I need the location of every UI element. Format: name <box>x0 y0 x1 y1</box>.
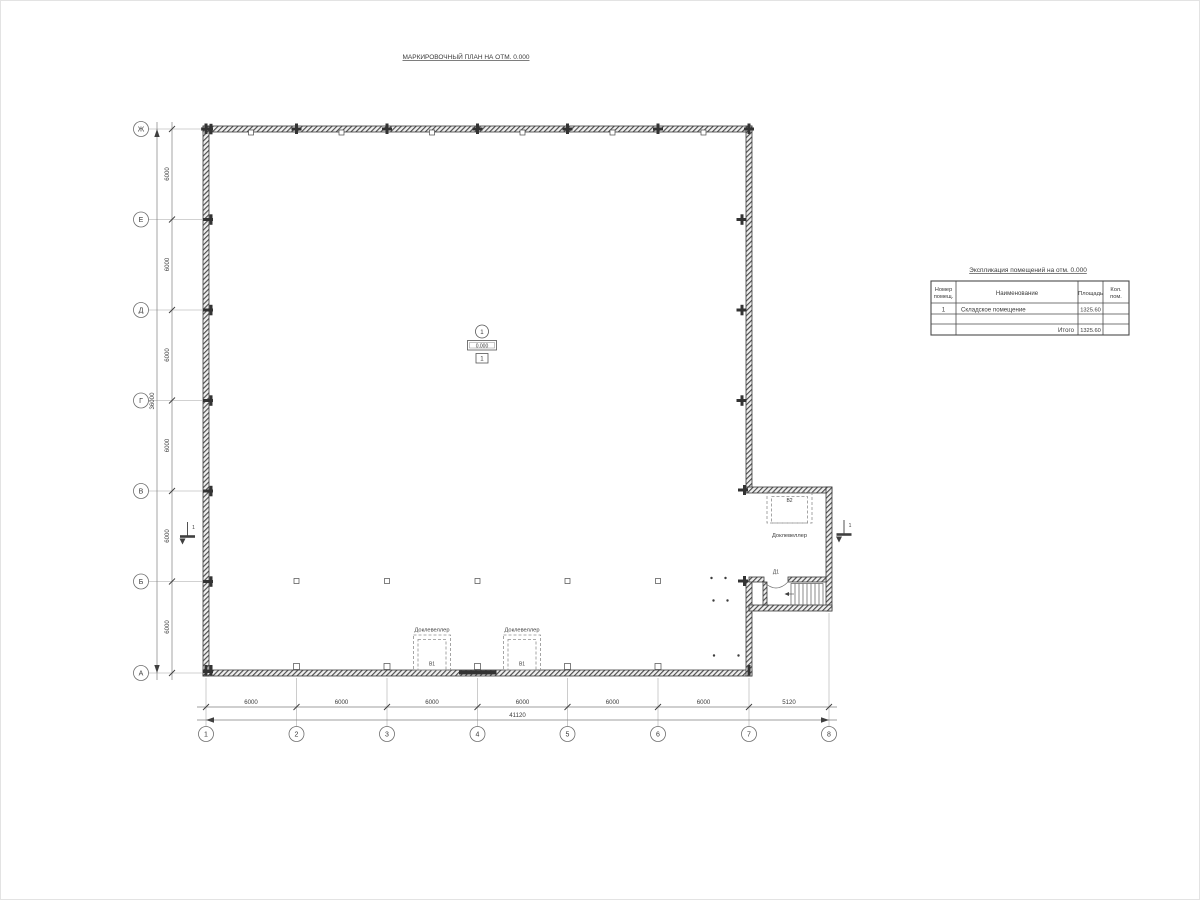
dock-leveller-2-label: Доклевеллер <box>504 628 539 634</box>
dock-leveller-3: В2 Доклевеллер <box>767 492 812 539</box>
axis-row-zh: Ж <box>138 127 145 134</box>
dim-bay-4: 6000 <box>516 699 530 706</box>
dim-row-4: 6000 <box>164 438 171 452</box>
section-mark-right: 1 <box>836 520 852 543</box>
header-count-2: пом. <box>1110 294 1122 300</box>
stairwell <box>785 584 824 606</box>
schedule-row-total: Итого 1325.60 <box>1058 327 1101 334</box>
column-marks <box>201 124 754 676</box>
dock-leveller-2: Доклевеллер В1 <box>504 628 541 671</box>
total-area: 1325.60 <box>1080 328 1101 334</box>
dim-bay-7: 5120 <box>782 699 796 706</box>
dock-leveller-2-tag: В1 <box>519 662 525 668</box>
axis-col-8: 8 <box>827 732 831 739</box>
axis-col-5: 5 <box>566 732 570 739</box>
axis-col-6: 6 <box>656 732 660 739</box>
wall-opening-marks <box>249 130 707 670</box>
elevation-value: 0.000 <box>476 344 489 350</box>
dim-total-height: 36000 <box>149 392 156 410</box>
dim-bay-6: 6000 <box>697 699 711 706</box>
total-label: Итого <box>1058 327 1075 334</box>
room-marker: 1 0.000 1 <box>468 325 497 363</box>
dock-leveller-1-tag: В1 <box>429 662 435 668</box>
axis-row-v: В <box>139 489 144 496</box>
dim-bay-1: 6000 <box>244 699 258 706</box>
dim-total-width: 41120 <box>509 712 526 719</box>
dock-leveller-3-label: Доклевеллер <box>772 533 807 539</box>
door-tag: Д1 <box>773 570 779 576</box>
dock-leveller-3-tag: В2 <box>786 498 792 504</box>
dock-leveller-1-label: Доклевеллер <box>414 628 449 634</box>
section-label-left: 1 <box>192 525 195 531</box>
row1-num: 1 <box>942 307 946 314</box>
left-dimensions: 6000 6000 6000 6000 6000 6000 36000 <box>149 122 175 680</box>
bottom-dimensions: 6000 6000 6000 6000 6000 6000 5120 41120 <box>197 699 837 723</box>
dim-bay-2: 6000 <box>335 699 349 706</box>
header-count-1: Кол. <box>1110 287 1122 293</box>
axis-col-2: 2 <box>295 732 299 739</box>
axis-col-7: 7 <box>747 732 751 739</box>
row1-name: Складское помещение <box>961 307 1026 314</box>
dim-bay-3: 6000 <box>425 699 439 706</box>
plan-title: МАРКИРОВОЧНЫЙ ПЛАН НА ОТМ. 0.000 <box>402 52 529 61</box>
header-num-1: Номер <box>935 287 953 293</box>
door: Д1 <box>764 570 788 589</box>
bottom-axis-circles: 1 2 3 4 5 6 7 8 <box>199 727 837 742</box>
header-name: Наименование <box>996 290 1039 297</box>
room-schedule: Экспликация помещений на отм. 0.000 Номе… <box>931 266 1129 335</box>
dim-row-3: 6000 <box>164 348 171 362</box>
axis-row-d: Д <box>139 308 144 315</box>
dim-row-1: 6000 <box>164 167 171 181</box>
dim-row-2: 6000 <box>164 257 171 271</box>
left-axis-circles: Ж Е Д Г В Б А <box>134 122 149 681</box>
axis-row-g: Г <box>139 398 143 405</box>
axis-row-a: А <box>139 671 144 678</box>
dim-bay-5: 6000 <box>606 699 620 706</box>
dock-leveller-1: Доклевеллер В1 <box>414 628 451 671</box>
drawing-sheet: МАРКИРОВОЧНЫЙ ПЛАН НА ОТМ. 0.000 <box>0 0 1200 900</box>
building-walls <box>203 126 752 676</box>
dim-row-5: 6000 <box>164 529 171 543</box>
extension-lines <box>149 129 830 727</box>
header-area: Площадь <box>1078 291 1103 297</box>
axis-col-1: 1 <box>204 732 208 739</box>
section-mark-left: 1 <box>180 522 196 545</box>
axis-col-3: 3 <box>385 732 389 739</box>
dim-row-6: 6000 <box>164 620 171 634</box>
floor-plan-drawing: МАРКИРОВОЧНЫЙ ПЛАН НА ОТМ. 0.000 <box>1 1 1200 900</box>
header-num-2: помещ. <box>934 294 954 300</box>
schedule-row-1: 1 Складское помещение 1325.60 <box>942 307 1101 314</box>
section-label-right: 1 <box>849 523 852 529</box>
schedule-header-row: Номер помещ. Наименование Площадь Кол. п… <box>934 287 1123 300</box>
axis-row-b: Б <box>139 579 144 586</box>
axis-row-e: Е <box>139 217 144 224</box>
interior-columns <box>294 577 740 657</box>
schedule-title: Экспликация помещений на отм. 0.000 <box>969 266 1087 274</box>
axis-col-4: 4 <box>476 732 480 739</box>
row1-area: 1325.60 <box>1080 308 1101 314</box>
